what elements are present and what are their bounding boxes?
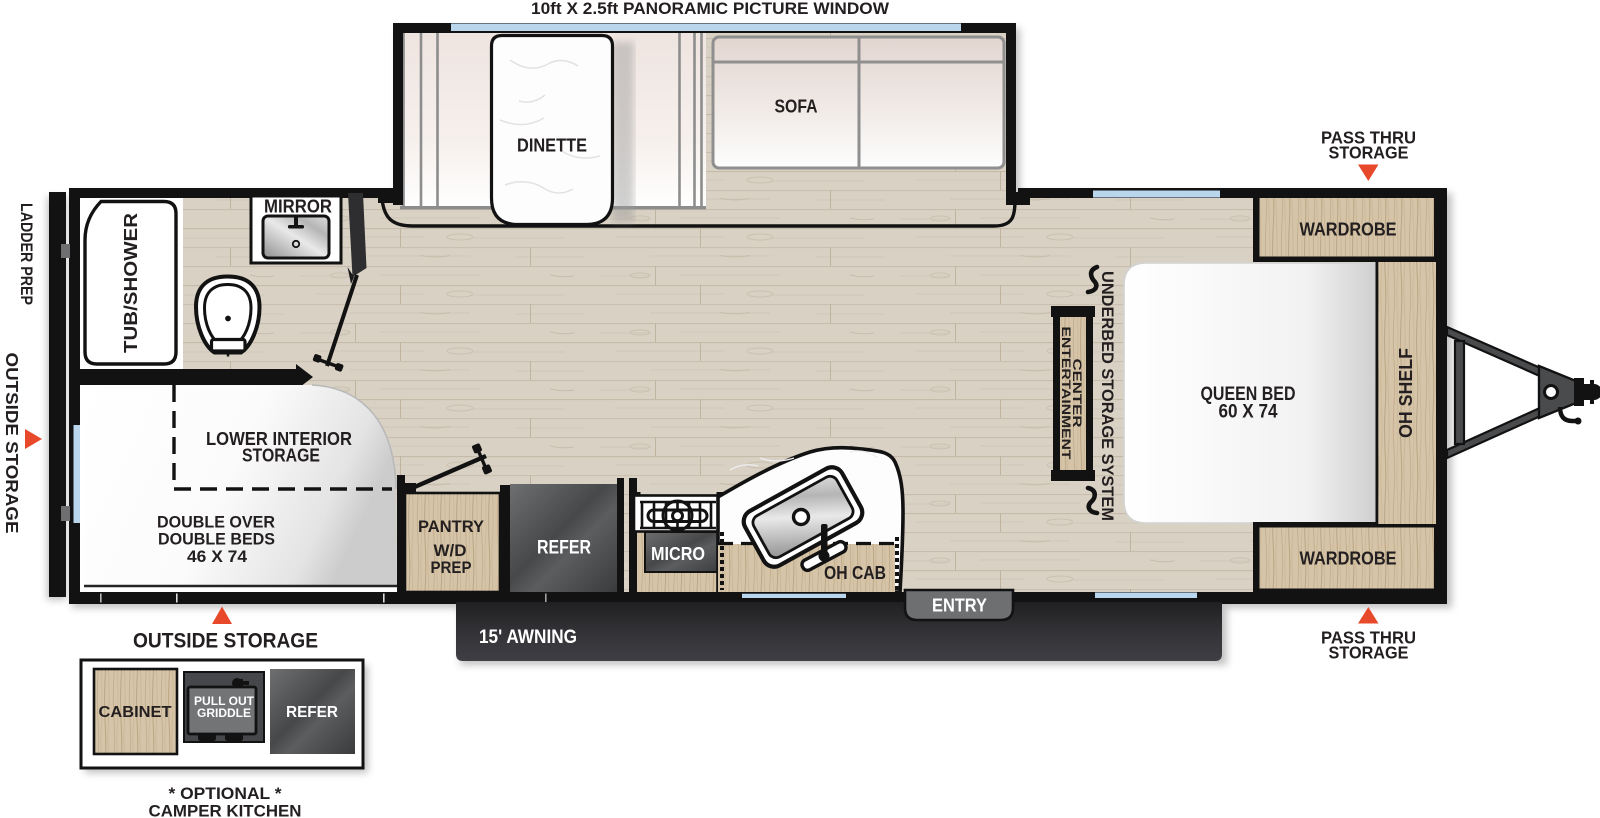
svg-text:* OPTIONAL *: * OPTIONAL * bbox=[169, 784, 282, 803]
svg-text:REFER: REFER bbox=[286, 704, 338, 721]
svg-text:60 X 74: 60 X 74 bbox=[1219, 402, 1278, 423]
svg-text:STORAGE: STORAGE bbox=[1329, 143, 1409, 163]
svg-text:MICRO: MICRO bbox=[651, 544, 705, 564]
svg-text:MIRROR: MIRROR bbox=[264, 197, 332, 217]
svg-text:ENTRY: ENTRY bbox=[932, 596, 987, 616]
svg-text:SOFA: SOFA bbox=[775, 96, 818, 117]
svg-text:WARDROBE: WARDROBE bbox=[1300, 220, 1397, 240]
svg-text:CAMPER KITCHEN: CAMPER KITCHEN bbox=[149, 802, 302, 818]
svg-text:PANTRY: PANTRY bbox=[418, 517, 485, 536]
svg-text:CABINET: CABINET bbox=[99, 704, 172, 721]
svg-text:OH SHELF: OH SHELF bbox=[1396, 348, 1416, 438]
svg-text:GRIDDLE: GRIDDLE bbox=[197, 706, 251, 720]
svg-text:WARDROBE: WARDROBE bbox=[1300, 549, 1397, 569]
svg-text:10ft X 2.5ft PANORAMIC PICTURE: 10ft X 2.5ft PANORAMIC PICTURE WINDOW bbox=[531, 0, 889, 18]
svg-text:LADDER PREP: LADDER PREP bbox=[17, 203, 36, 305]
svg-text:PREP: PREP bbox=[431, 558, 472, 577]
svg-text:OUTSIDE STORAGE: OUTSIDE STORAGE bbox=[2, 353, 22, 534]
svg-text:OUTSIDE STORAGE: OUTSIDE STORAGE bbox=[133, 630, 318, 653]
svg-text:UNDERBED STORAGE SYSTEM: UNDERBED STORAGE SYSTEM bbox=[1098, 271, 1116, 521]
svg-text:TUB/SHOWER: TUB/SHOWER bbox=[121, 213, 141, 353]
svg-text:OH CAB: OH CAB bbox=[824, 563, 886, 583]
svg-text:CENTER: CENTER bbox=[1070, 359, 1084, 428]
svg-text:STORAGE: STORAGE bbox=[1329, 643, 1409, 663]
svg-text:REFER: REFER bbox=[537, 538, 591, 559]
svg-text:STORAGE: STORAGE bbox=[242, 445, 320, 466]
svg-text:15' AWNING: 15' AWNING bbox=[479, 626, 577, 648]
svg-text:DINETTE: DINETTE bbox=[517, 135, 587, 156]
svg-text:46 X 74: 46 X 74 bbox=[187, 547, 248, 566]
svg-text:DOUBLE BEDS: DOUBLE BEDS bbox=[158, 530, 275, 549]
